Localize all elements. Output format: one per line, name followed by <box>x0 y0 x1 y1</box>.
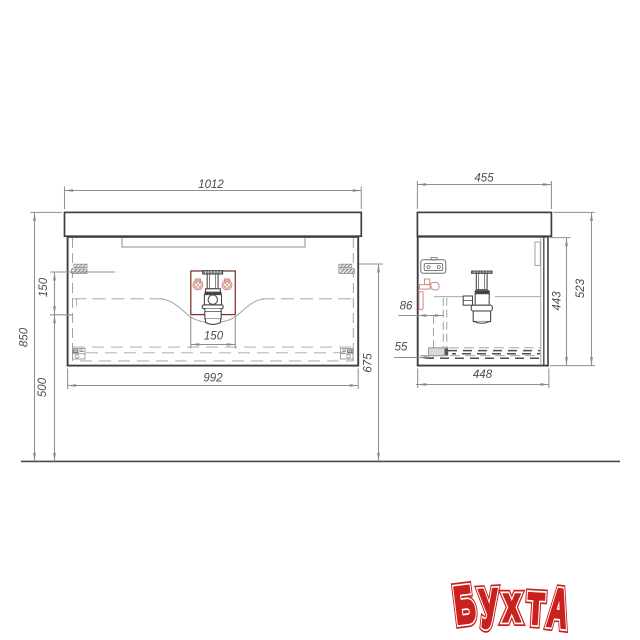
svg-text:850: 850 <box>19 327 31 347</box>
svg-text:1012: 1012 <box>198 179 224 191</box>
svg-text:Х: Х <box>503 587 520 629</box>
svg-text:86: 86 <box>400 301 413 313</box>
svg-text:448: 448 <box>473 369 493 381</box>
svg-text:150: 150 <box>204 331 224 343</box>
svg-text:443: 443 <box>552 291 564 311</box>
svg-text:500: 500 <box>37 377 49 397</box>
svg-text:150: 150 <box>38 277 50 297</box>
svg-text:Т: Т <box>526 585 545 634</box>
svg-text:455: 455 <box>474 173 494 185</box>
svg-text:55: 55 <box>395 342 408 354</box>
svg-text:675: 675 <box>363 353 375 373</box>
svg-text:992: 992 <box>203 373 223 385</box>
svg-text:523: 523 <box>575 278 587 298</box>
